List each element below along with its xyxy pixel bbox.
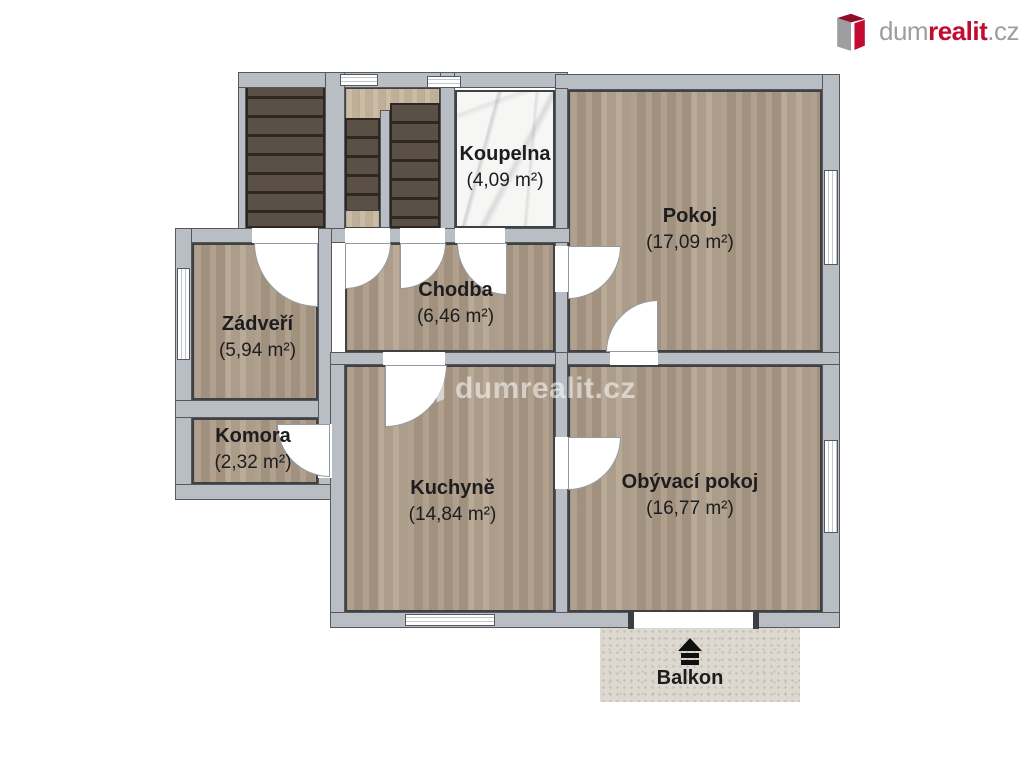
door-opening [455, 228, 505, 243]
door-opening [555, 246, 568, 292]
dumrealit-logo-text: dumrealit.cz [879, 16, 1019, 47]
room-name: Zádveří [185, 312, 330, 337]
label-komora: Komora (2,32 m²) [183, 424, 323, 475]
door-opening [252, 228, 318, 243]
balcony-door-opening [630, 612, 757, 628]
staircase-run-right [390, 103, 440, 228]
room-name: Komora [183, 424, 323, 449]
logo-dum: dum [879, 16, 928, 46]
door-opening [400, 228, 445, 243]
room-area: (5,94 m²) [185, 339, 330, 363]
floorplan-page: { "brand": { "dum": "dum", "realit": "re… [0, 0, 1024, 769]
label-koupelna: Koupelna (4,09 m²) [443, 142, 567, 193]
wall [555, 74, 840, 90]
room-area: (14,84 m²) [370, 503, 535, 527]
room-name: Kuchyně [370, 476, 535, 501]
label-pokoj: Pokoj (17,09 m²) [605, 204, 775, 255]
wall [380, 110, 390, 228]
label-obyvaci-pokoj: Obývací pokoj (16,77 m²) [585, 470, 795, 521]
room-name: Koupelna [443, 142, 567, 167]
room-name: Balkon [620, 666, 760, 691]
label-balkon: Balkon [620, 666, 760, 691]
door-opening [555, 437, 568, 489]
room-name: Chodba [383, 278, 528, 303]
room-area: (16,77 m²) [585, 497, 795, 521]
window [427, 76, 461, 88]
room-area: (2,32 m²) [183, 451, 323, 475]
logo-realit: realit [928, 16, 987, 46]
wall [238, 72, 568, 88]
window [824, 170, 838, 265]
wall [555, 352, 568, 628]
logo-cz: .cz [987, 16, 1019, 46]
room-name: Pokoj [605, 204, 775, 229]
label-chodba: Chodba (6,46 m²) [383, 278, 528, 329]
door-opening [345, 228, 390, 243]
wall [555, 88, 568, 354]
door-opening [610, 352, 658, 365]
balcony-door-post [628, 610, 634, 629]
balcony-door-post [753, 610, 759, 629]
wall [330, 352, 345, 628]
room-name: Obývací pokoj [585, 470, 795, 495]
label-zadveri: Zádveří (5,94 m²) [185, 312, 330, 363]
dumrealit-logo: dumrealit.cz [832, 10, 1019, 52]
staircase-foot [345, 210, 380, 228]
up-arrow-icon [678, 638, 702, 665]
room-area: (6,46 m²) [383, 305, 528, 329]
window [824, 440, 838, 533]
wall [175, 400, 332, 418]
wall [175, 484, 332, 500]
door-opening [383, 352, 445, 365]
room-area: (17,09 m²) [605, 231, 775, 255]
wall [325, 72, 345, 230]
wall [238, 72, 246, 230]
window [340, 74, 378, 86]
staircase-run-mid [345, 118, 380, 212]
room-area: (4,09 m²) [443, 169, 567, 193]
dumrealit-logo-icon [832, 10, 870, 52]
wall [822, 74, 840, 628]
staircase-run-left [246, 78, 325, 228]
window [405, 614, 495, 626]
label-kuchyne: Kuchyně (14,84 m²) [370, 476, 535, 527]
